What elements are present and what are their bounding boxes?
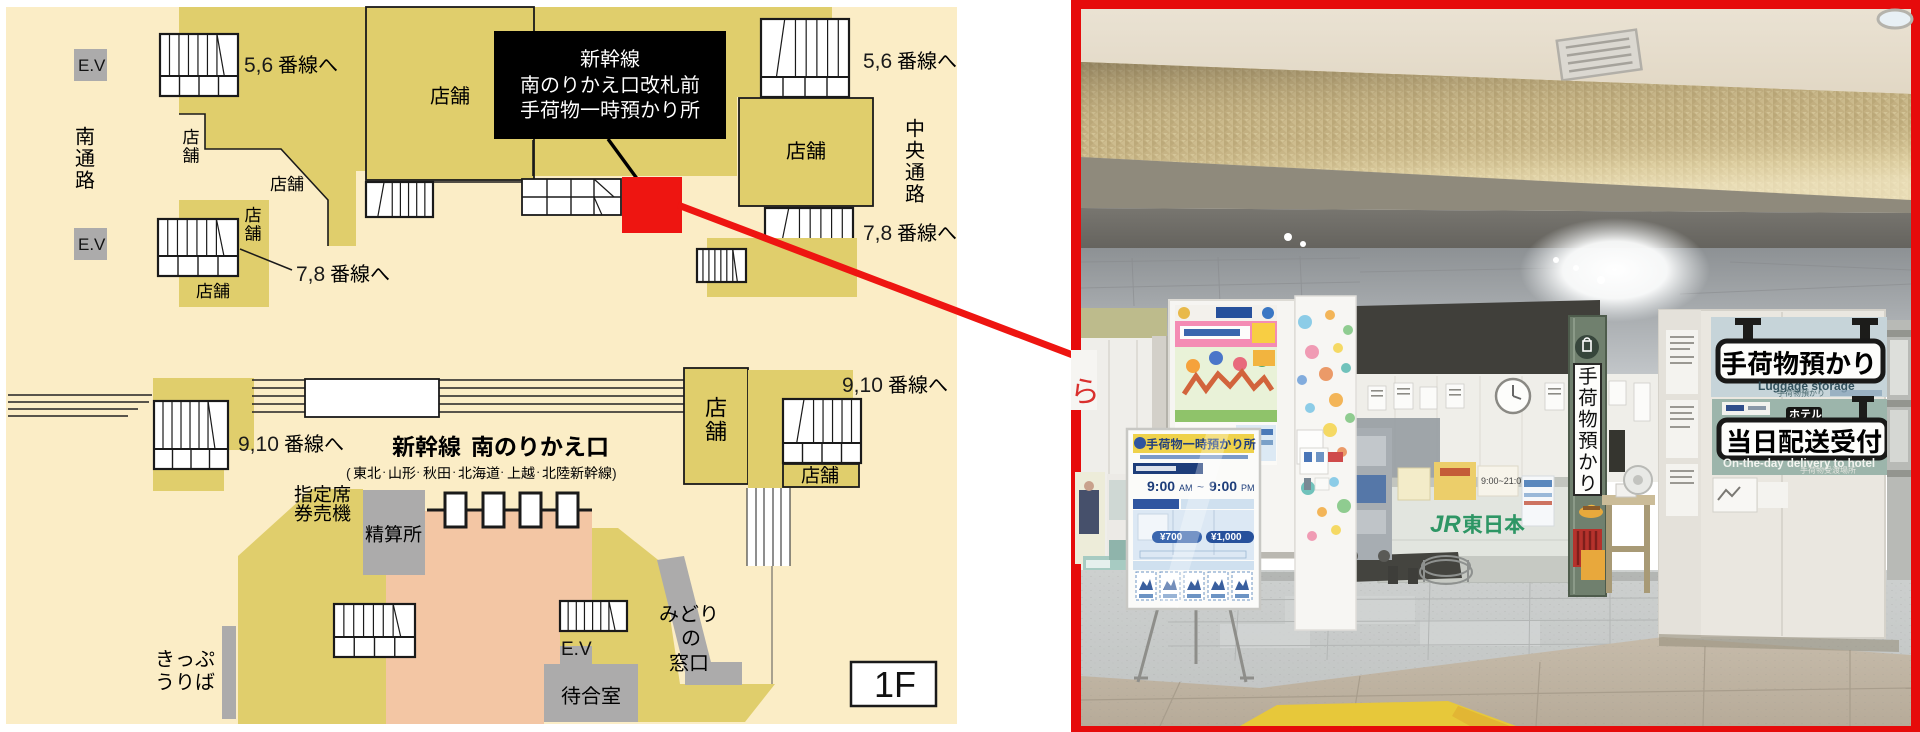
svg-text:9,10: 9,10 bbox=[238, 433, 279, 456]
svg-text:(: ( bbox=[346, 465, 351, 481]
svg-text:·: · bbox=[536, 464, 540, 479]
svg-text:E.V: E.V bbox=[78, 235, 106, 254]
svg-text:·: · bbox=[416, 464, 420, 479]
svg-text:5,6: 5,6 bbox=[244, 54, 273, 77]
svg-text:PM: PM bbox=[1241, 483, 1255, 493]
svg-text:7,8: 7,8 bbox=[863, 222, 892, 245]
svg-text:E.V: E.V bbox=[78, 56, 106, 75]
svg-text:1F: 1F bbox=[874, 664, 916, 705]
svg-text:JR: JR bbox=[1430, 511, 1461, 538]
svg-text:E.V: E.V bbox=[561, 639, 592, 660]
svg-text:9:00~21:00: 9:00~21:00 bbox=[1481, 476, 1526, 486]
svg-text:·: · bbox=[452, 464, 456, 479]
svg-text:5,6: 5,6 bbox=[863, 50, 892, 73]
svg-text:·: · bbox=[382, 464, 386, 479]
svg-text:9:00: 9:00 bbox=[1147, 478, 1175, 494]
svg-text:9,10: 9,10 bbox=[842, 374, 883, 397]
svg-text:¥1,000: ¥1,000 bbox=[1211, 532, 1242, 543]
svg-text:On-the-day delivery to hotel: On-the-day delivery to hotel bbox=[1723, 458, 1875, 470]
svg-text:·: · bbox=[500, 464, 504, 479]
svg-text:): ) bbox=[612, 465, 617, 481]
svg-text:7,8: 7,8 bbox=[296, 263, 325, 286]
